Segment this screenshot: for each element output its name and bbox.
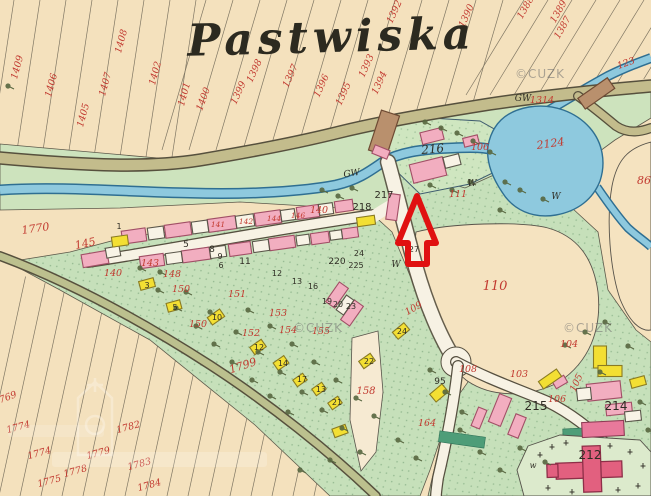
parcel-number-red: 140: [104, 268, 122, 279]
tree-icon: [157, 269, 162, 274]
house-number-black: 5: [172, 303, 177, 312]
tree-icon: [517, 445, 522, 450]
house-number-black: 9: [217, 252, 222, 261]
house-number-black: 5: [183, 240, 189, 250]
building: [329, 230, 342, 241]
parcel-number-red: 151: [228, 289, 246, 300]
tree-icon: [497, 207, 502, 212]
tree-icon: [427, 367, 432, 372]
watermark-cuzk: ©CUZK: [563, 321, 613, 335]
tree-icon: [540, 196, 545, 201]
tree-icon: [477, 449, 482, 454]
tree-icon: [335, 193, 340, 198]
tree-icon: [349, 185, 354, 190]
tree-icon: [497, 467, 502, 472]
tree-icon: [285, 409, 290, 414]
house-number-black: 212: [579, 448, 602, 462]
house-number-black: 214: [605, 399, 628, 413]
tree-icon: [319, 187, 324, 192]
house-number-black: 24: [354, 249, 364, 258]
outbuilding-yellow: [594, 346, 607, 368]
house-number-black: 19: [322, 297, 332, 306]
tree-icon: [357, 449, 362, 454]
parcel-number-red: 111: [449, 189, 467, 200]
house-number-black: 10: [212, 313, 222, 322]
tree-icon: [5, 83, 10, 88]
tree-icon: [327, 457, 332, 462]
tree-icon: [395, 437, 400, 442]
tree-icon: [245, 307, 250, 312]
house-number-black: 6: [218, 261, 223, 270]
tree-icon: [645, 427, 650, 432]
parcel-number-red: 143: [141, 258, 159, 269]
tree-icon: [319, 407, 324, 412]
parcel-number-red: 106: [548, 394, 566, 405]
parcel-number-red: 141: [211, 220, 225, 229]
parcel-number-red: 106: [471, 142, 489, 153]
house-pink: [310, 231, 329, 244]
building: [191, 220, 209, 234]
parcel-number-red: 152: [242, 328, 260, 339]
house-number-black: 12: [272, 269, 282, 278]
tree-icon: [339, 425, 344, 430]
parcel-number-red: 110: [483, 279, 508, 294]
parcel-number-red: 86: [637, 174, 651, 187]
house-number-black: 13: [316, 385, 326, 394]
house-number-black: 215: [525, 399, 548, 413]
tree-icon: [459, 409, 464, 414]
house-number-black: 8: [209, 245, 215, 255]
churchyard: [517, 435, 651, 496]
tree-icon: [637, 399, 642, 404]
watermark-text-bar: [8, 425, 104, 437]
house-number-black: GW: [515, 94, 532, 104]
parcel-number-red: 1314: [530, 95, 554, 106]
tree-icon: [267, 323, 272, 328]
house-number-black: 225: [348, 261, 363, 270]
parcel-number-red: 146: [291, 211, 306, 220]
building: [165, 251, 182, 264]
parcel-number-red: 108: [459, 364, 477, 375]
parcel-number-red: 153: [269, 308, 287, 319]
building: [296, 234, 310, 246]
tree-icon: [277, 369, 282, 374]
tree-icon: [422, 119, 427, 124]
watermark-cuzk: ©CUZK: [515, 67, 565, 81]
tree-icon: [289, 341, 294, 346]
tree-icon: [502, 179, 507, 184]
house-number-black: 17: [297, 375, 307, 384]
tree-icon: [542, 459, 547, 464]
tree-icon: [249, 377, 254, 382]
house-number-black: 220: [328, 257, 345, 267]
tree-icon: [625, 343, 630, 348]
building: [252, 239, 269, 252]
house-number-black: 12: [254, 343, 264, 352]
map-title: Pastwiska: [185, 8, 477, 67]
house-number-black: 23: [346, 302, 356, 311]
house-pink: [228, 242, 251, 257]
parcel-number-red: 142: [239, 217, 254, 226]
parcel-number-red: 148: [163, 269, 181, 280]
parcel-number-red: 150: [172, 284, 190, 295]
outbuilding-yellow: [111, 235, 128, 247]
house-number-black: 3: [144, 281, 149, 290]
watermark-text-bar: [52, 452, 267, 467]
building: [147, 226, 165, 240]
house-number-black: 218: [352, 202, 371, 213]
tree-icon: [333, 377, 338, 382]
tree-icon: [427, 182, 432, 187]
house-number-black: 13: [292, 277, 302, 286]
parcel-number-red: 164: [418, 418, 436, 429]
tree-icon: [297, 467, 302, 472]
tree-icon: [442, 389, 447, 394]
parcel-number-red: 104: [560, 339, 578, 350]
parcel-number-red: 158: [356, 386, 375, 397]
tree-icon: [371, 413, 376, 418]
tree-icon: [413, 455, 418, 460]
house-number-black: 217: [374, 190, 393, 201]
tree-icon: [299, 389, 304, 394]
cadastral-map: 1409140814071406140514021401140013991398…: [0, 0, 651, 496]
outbuilding-yellow: [356, 215, 375, 226]
house-number-black: W: [467, 179, 477, 189]
tree-icon: [597, 369, 602, 374]
house-pink: [334, 199, 353, 212]
tree-icon: [457, 427, 462, 432]
house-number-black: 24: [397, 327, 407, 336]
tree-icon: [454, 130, 459, 135]
parcel-number-red: 103: [510, 369, 528, 380]
tree-icon: [438, 125, 443, 130]
house-number-black: 11: [239, 257, 250, 267]
house-number-black: w: [530, 461, 537, 470]
tree-icon: [155, 287, 160, 292]
tree-icon: [267, 393, 272, 398]
building: [105, 246, 121, 258]
house-number-black: W: [551, 192, 561, 202]
house-number-black: 1: [116, 222, 121, 231]
cadastral-map-screenshot: 1409140814071406140514021401140013991398…: [0, 0, 651, 496]
tree-icon: [233, 329, 238, 334]
tree-icon: [211, 341, 216, 346]
parcel-number-red: 144: [267, 214, 282, 223]
house-number-black: 22: [364, 357, 374, 366]
house-number-black: 21: [332, 398, 342, 407]
house-number-black: 95: [434, 377, 445, 387]
building: [582, 420, 625, 437]
house-pink: [341, 227, 358, 239]
parcel-number-red: 140: [310, 205, 328, 216]
tree-icon: [517, 187, 522, 192]
watermark-cuzk: ©CUZK: [293, 321, 343, 335]
house-number-black: 216: [420, 141, 445, 157]
house-number-black: 16: [308, 282, 318, 291]
house-number-black: W: [391, 260, 401, 270]
parcel-number-red: 150: [189, 319, 207, 330]
house-number-black: 14: [278, 359, 288, 368]
tree-icon: [311, 359, 316, 364]
house-number-black: 20: [333, 300, 343, 309]
